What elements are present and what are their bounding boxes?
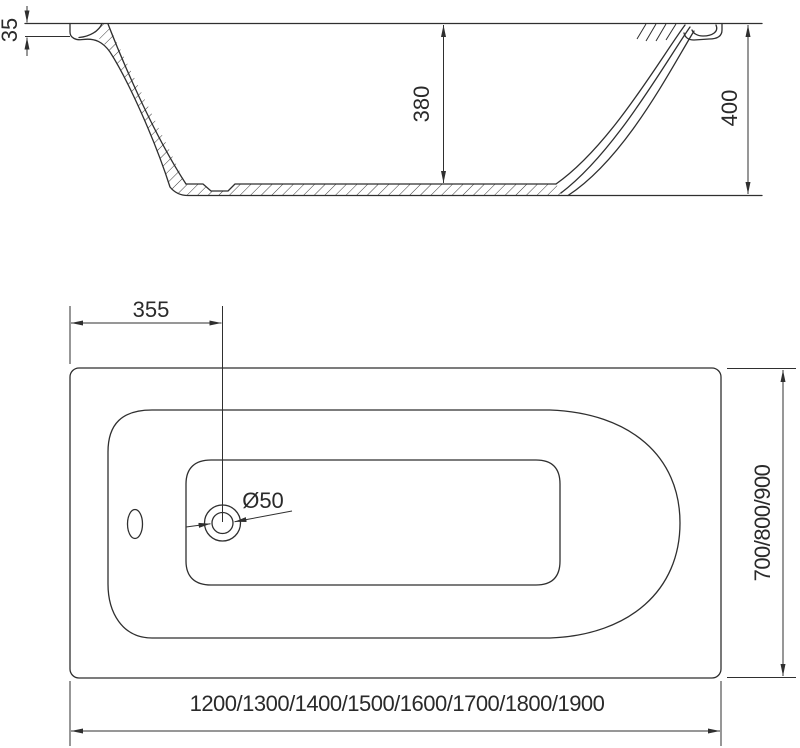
overall-height-label: 400	[717, 90, 742, 127]
drain-offset-label: 355	[133, 297, 170, 322]
right-rim-hatch-ticks	[637, 24, 676, 41]
dim-drain-diameter: Ø50	[186, 488, 292, 527]
tub-inner-rim	[108, 410, 680, 638]
overflow-hole	[128, 510, 143, 539]
top-plan-view: 355 Ø50 700/800/900 1200/1300/1400/150	[70, 297, 796, 746]
dim-width-options: 700/800/900	[727, 369, 796, 678]
section-hatch-areas	[95, 24, 564, 196]
dim-inner-depth: 380	[409, 25, 444, 183]
right-wall-line-outer	[568, 31, 694, 196]
drain-diameter-label: Ø50	[242, 488, 284, 513]
length-options-label: 1200/1300/1400/1500/1600/1700/1800/1900	[190, 691, 605, 716]
dim-rim-thickness: 35	[0, 6, 27, 56]
inner-depth-label: 380	[409, 86, 434, 123]
dim-overall-height: 400	[717, 25, 748, 194]
technical-drawing-sheet: 35 380 400	[0, 0, 800, 748]
right-rim-curl	[692, 25, 717, 36]
width-options-label: 700/800/900	[750, 464, 775, 581]
rim-thickness-label: 35	[0, 18, 22, 42]
dim-length-options: 1200/1300/1400/1500/1600/1700/1800/1900	[70, 681, 721, 746]
bathtub-drawing-svg: 35 380 400	[0, 0, 800, 748]
right-wall-line-inner	[556, 25, 685, 184]
tub-outer-rim	[70, 368, 721, 678]
tub-section-outline	[25, 24, 762, 196]
dim-d50-arrow-left	[186, 524, 211, 527]
tub-floor	[186, 460, 560, 585]
side-section-view: 35 380 400	[0, 6, 762, 196]
